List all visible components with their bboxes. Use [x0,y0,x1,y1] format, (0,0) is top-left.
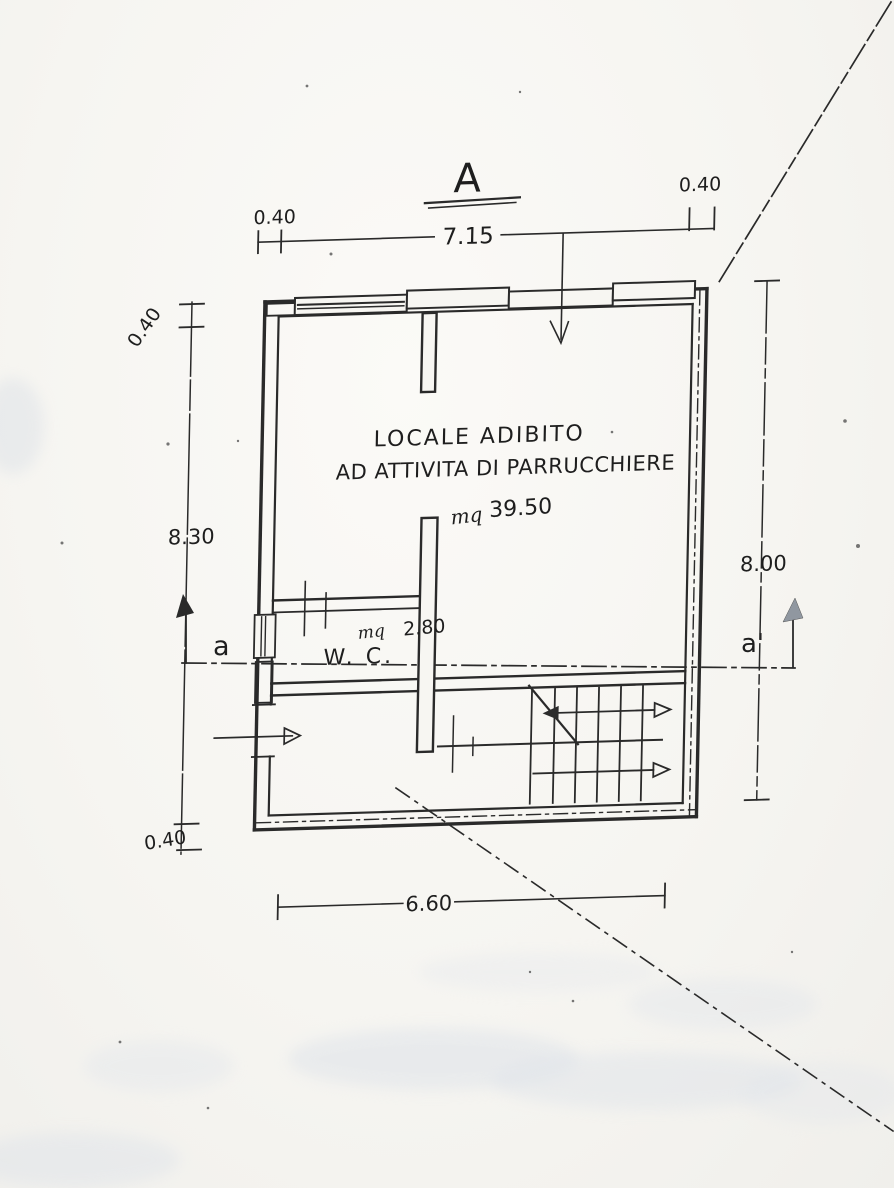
dim-line [258,237,434,242]
section-arrow-left-head [176,594,194,618]
stair-arrow-head-lower [653,762,669,776]
dim-label-left-wall-top: 0.40 [123,304,166,351]
window-glazing [265,617,266,656]
window-top-2 [407,288,509,309]
stair-direction-arrow-lower [533,770,653,774]
dim-label-right-span: 8.00 [740,551,787,576]
wc-area-value: 2.80 [403,615,446,640]
entrance-arrow-top-stem [561,234,563,339]
left-wall-inner [269,756,270,815]
bottom-wall-centerline [257,810,695,823]
section-arrow-right-head [783,598,803,622]
floor-plan-drawing: a a' A 0.40 7.15 0.40 [0,0,894,1188]
entrance-arrow-left-stem [214,736,292,738]
section-label-left: a [213,631,230,662]
section-line [182,663,795,668]
dimension-right: 8.00 [735,280,792,800]
entrance-top-opening [509,288,613,308]
staircase [437,681,671,806]
dim-line [278,903,403,907]
dim-label-bottom-span: 6.60 [405,891,452,916]
scanned-floor-plan-sheet: a a' A 0.40 7.15 0.40 [0,0,894,1188]
dimension-bottom: 6.60 [278,884,666,921]
main-room-label-line1: LOCALE ADIBITO [373,421,585,452]
main-room-area-value: 39.50 [489,494,552,523]
plan-group: A 0.40 7.15 0.40 [111,146,795,925]
top-wall-corner-block [267,303,297,316]
dim-tick [180,304,204,305]
main-room-area-unit: mq [450,502,483,530]
right-wall-outer [696,289,707,817]
stair-direction-arrow-upper [559,710,655,713]
wall-tick [304,582,305,636]
window-glazing [261,617,262,656]
stair-arrow-start-head [542,706,558,720]
bottom-wall-outer [254,817,696,830]
bottom-wall-inner [269,803,683,815]
mid-wall [271,671,685,683]
dim-label-top-wall-right: 0.40 [679,173,722,196]
wall-stub-top [421,313,437,392]
left-wall-outer [254,302,265,830]
building-outline [250,281,707,830]
dimension-top: 0.40 7.15 0.40 [253,173,722,256]
mid-wall-inner [271,683,685,695]
wc-room-label: W. C. [323,644,394,671]
stair-tick [452,716,453,772]
section-title: A [453,155,482,202]
dim-label-top-span: 7.15 [442,223,494,251]
wc-north-wall [273,596,420,600]
dim-tick [177,849,201,850]
dimension-left: 0.40 8.30 0.40 [113,301,220,856]
dim-tick [755,280,779,281]
stair-landing-line [438,740,662,747]
dim-label-left-span: 8.30 [168,524,215,549]
main-room-label-line2: AD ATTIVITA DI PARRUCCHIERE [336,450,676,484]
door-jamb [252,756,274,757]
entrance-arrow-top-head [550,321,568,344]
section-title-underline2 [429,202,516,208]
dim-line [181,302,192,854]
door-jamb [253,704,275,705]
stair-arrow-head-upper [654,702,670,716]
section-title-block: A [425,154,521,208]
dim-tick [180,327,204,328]
wc-area-unit: mq [357,621,385,644]
interior-walls [270,305,693,756]
dim-line [757,281,767,800]
dim-tick [175,824,199,825]
map-diagonal-bottom [396,788,893,1131]
dim-tick [745,799,769,800]
room-labels: LOCALE ADIBITO AD ATTIVITA DI PARRUCCHIE… [323,418,676,670]
window-top-3 [613,281,695,300]
left-wall-inner [273,316,279,614]
map-diagonal-top-right [719,2,891,282]
dim-label-top-wall-left: 0.40 [253,206,296,229]
wc-north-wall-inner [273,608,420,612]
wall-tick [325,593,326,628]
dim-line [501,228,714,234]
